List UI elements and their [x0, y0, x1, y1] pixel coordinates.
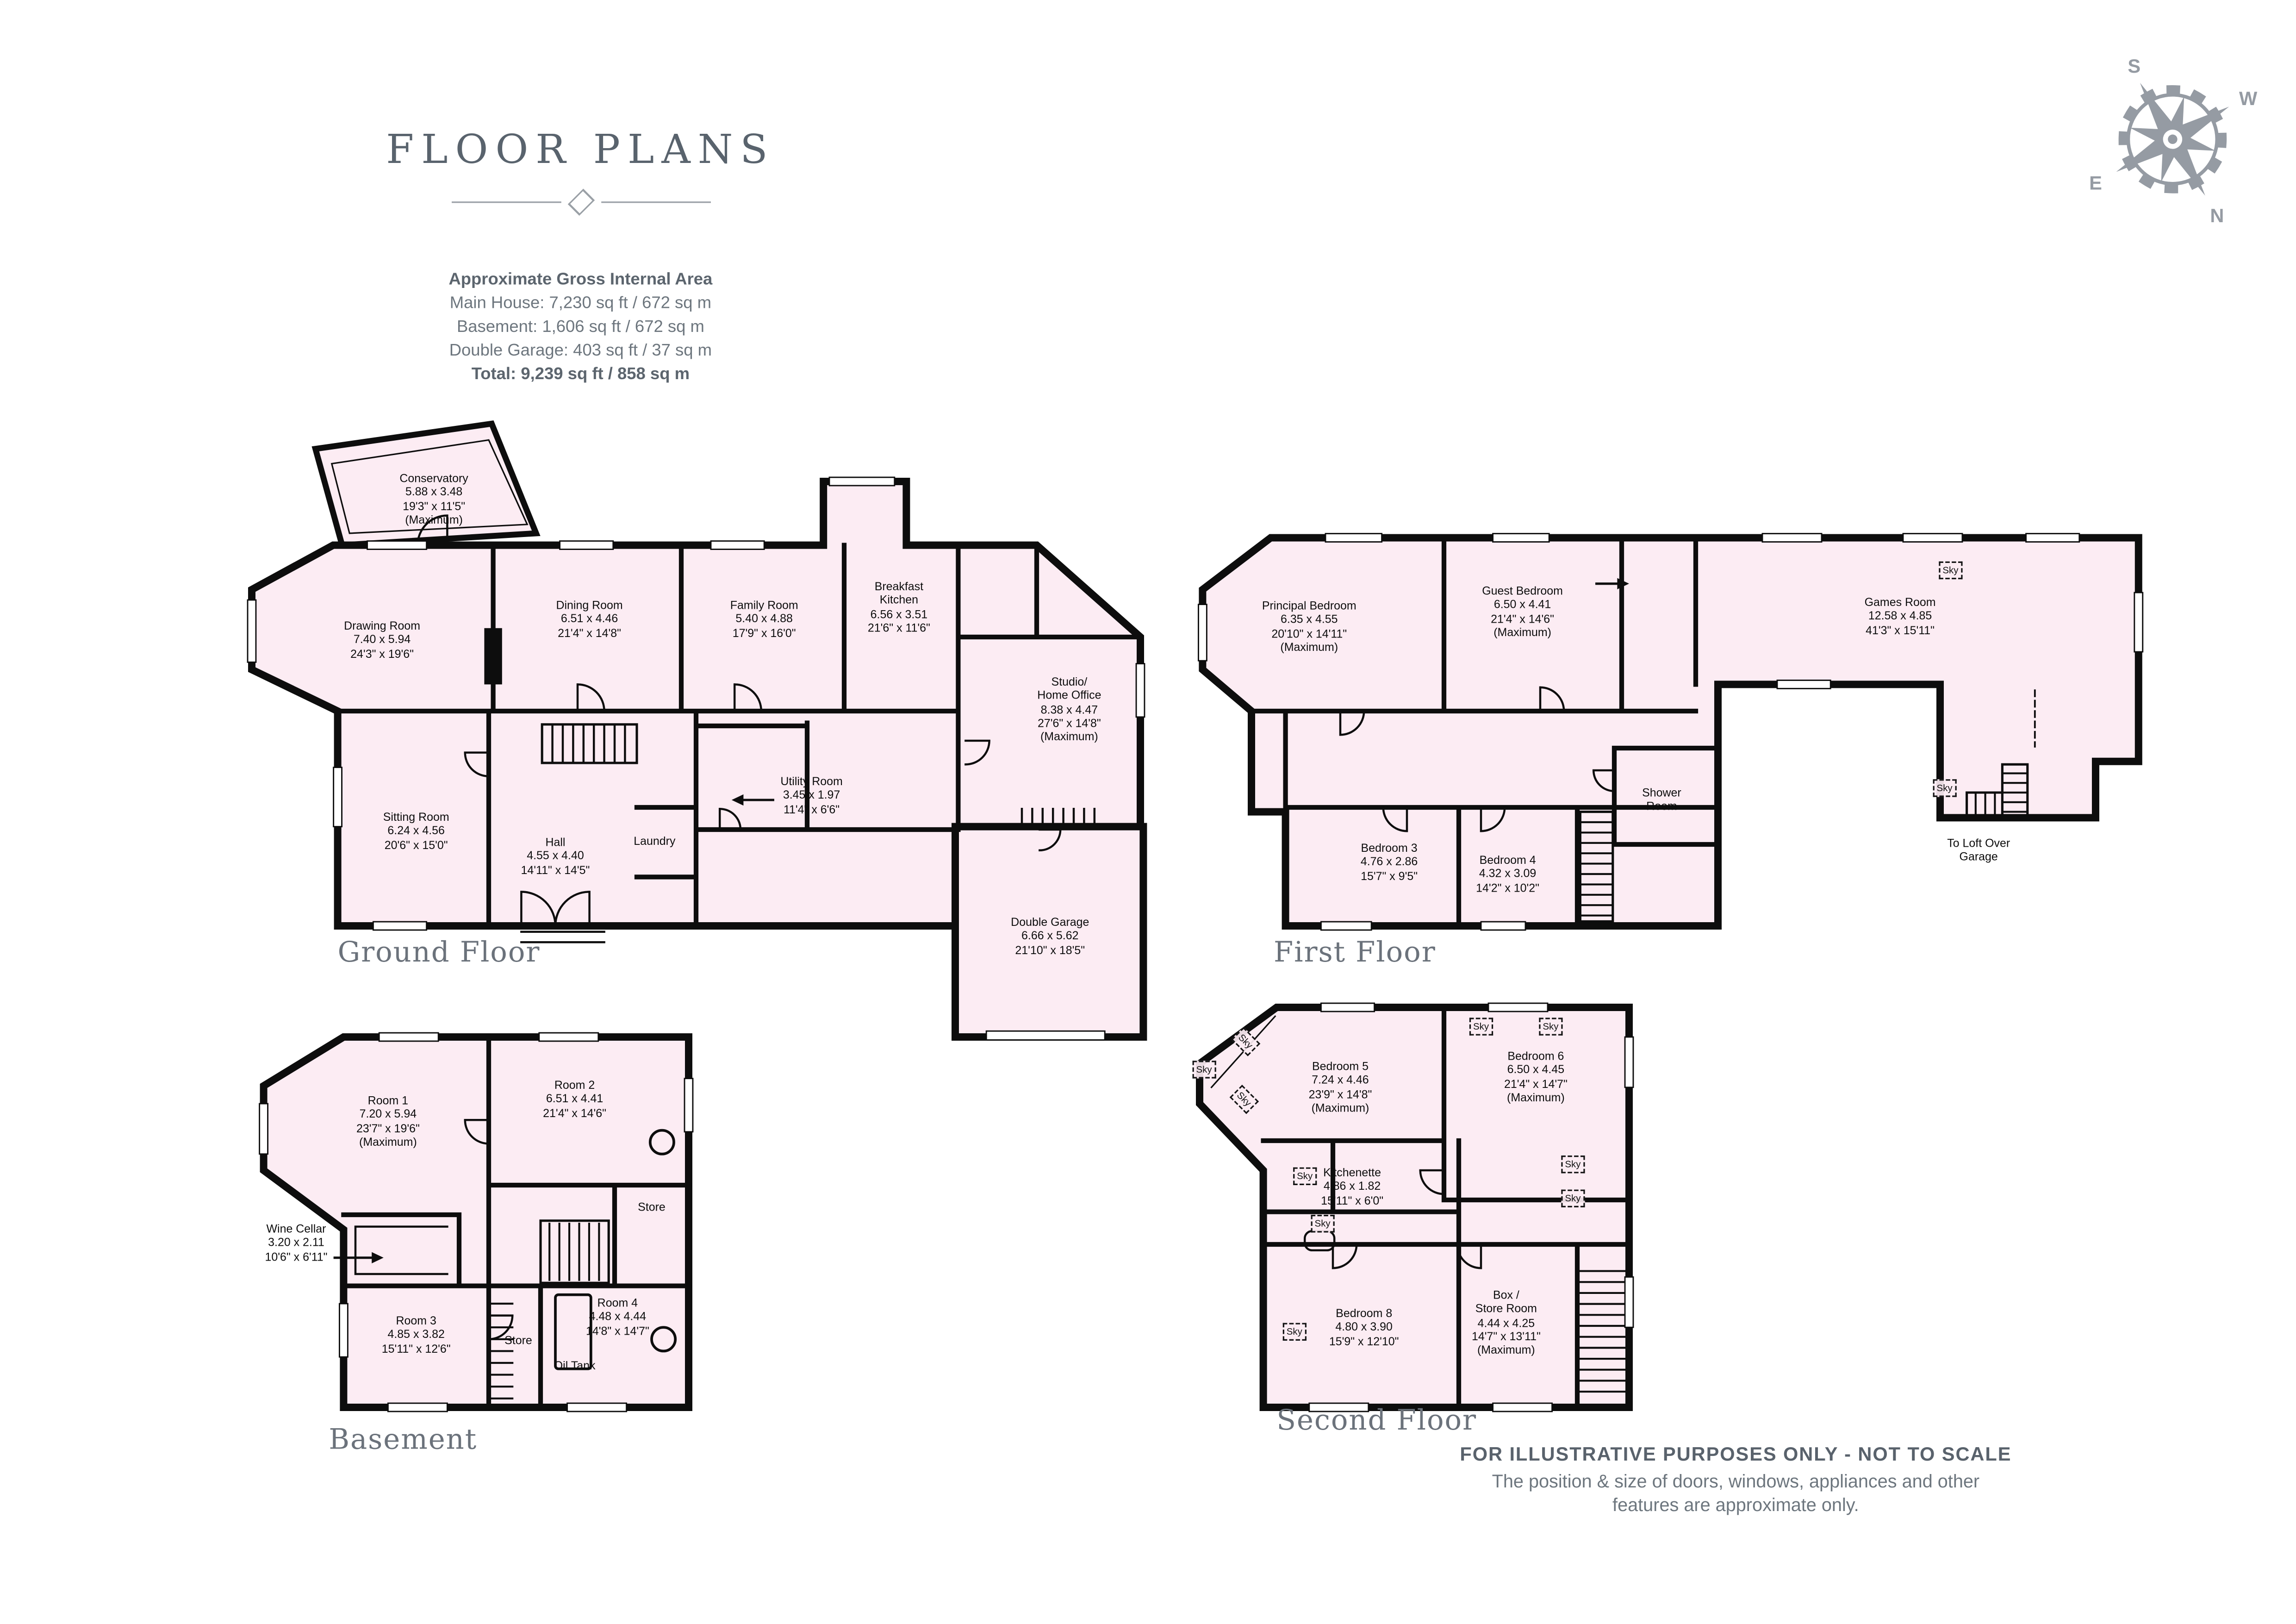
room-label-line: 4.86 x 1.82: [1321, 1180, 1383, 1193]
second-floor-plan: [1200, 1003, 1633, 1412]
room-label-line: Bedroom 8: [1329, 1307, 1399, 1321]
room-label-room-4: Room 44.48 x 4.4414'8" x 14'7": [586, 1296, 649, 1337]
room-label-line: Kitchenette: [1321, 1166, 1383, 1180]
room-label-line: 19'3" x 11'5": [399, 499, 468, 513]
room-label-line: 23'9" x 14'8": [1309, 1087, 1372, 1101]
compass-west-label: W: [2239, 87, 2258, 109]
room-label-line: 6.24 x 4.56: [383, 824, 449, 838]
room-label-line: 14'8" x 14'7": [586, 1324, 649, 1338]
room-label-line: 3.45 x 1.97: [780, 789, 843, 803]
room-label-line: 15'11" x 12'6": [382, 1342, 451, 1355]
room-label-shower-room: ShowerRoom: [1642, 786, 1681, 814]
room-label-line: 3.20 x 2.11: [265, 1236, 328, 1250]
room-label-room-1: Room 17.20 x 5.9423'7" x 19'6"(Maximum): [356, 1094, 420, 1149]
room-label-line: Room 4: [586, 1296, 649, 1310]
room-label-studio-home-office: Studio/Home Office8.38 x 4.4727'6" x 14'…: [1037, 675, 1101, 744]
room-label-bedroom-4: Bedroom 44.32 x 3.0914'2" x 10'2": [1476, 853, 1539, 894]
first-floor-plan: [1198, 534, 2142, 930]
room-label-store-lower: Store: [504, 1334, 532, 1348]
room-label-line: Shower: [1642, 786, 1681, 800]
skylight-label: Sky: [1283, 1323, 1306, 1341]
disclaimer: FOR ILLUSTRATIVE PURPOSES ONLY - NOT TO …: [1425, 1443, 2047, 1517]
room-label-line: Hall: [521, 836, 590, 849]
room-label-utility-room: Utility Room3.45 x 1.9711'4" x 6'6": [780, 775, 843, 816]
room-label-line: Studio/: [1037, 675, 1101, 689]
room-label-line: 20'10" x 14'11": [1262, 627, 1356, 641]
room-label-wine-cellar: Wine Cellar3.20 x 2.1110'6" x 6'11": [265, 1222, 328, 1263]
room-label-line: 11'4" x 6'6": [780, 802, 843, 816]
room-label-line: Guest Bedroom: [1482, 584, 1563, 598]
room-label-hall: Hall4.55 x 4.4014'11" x 14'5": [521, 836, 590, 877]
room-label-line: 15'11" x 6'0": [1321, 1193, 1383, 1207]
disclaimer-line: The position & size of doors, windows, a…: [1425, 1469, 2047, 1493]
room-label-line: (Maximum): [356, 1135, 420, 1149]
room-label-family-room: Family Room5.40 x 4.8817'9" x 16'0": [730, 599, 798, 640]
skylight-text: Sky: [1473, 1021, 1489, 1031]
room-label-line: (Maximum): [1262, 640, 1356, 654]
room-label-line: (Maximum): [1037, 730, 1101, 744]
skylight-text: Sky: [1297, 1171, 1313, 1181]
room-label-line: 17'9" x 16'0": [730, 626, 798, 640]
room-label-sitting-room: Sitting Room6.24 x 4.5620'6" x 15'0": [383, 811, 449, 852]
room-label-line: 21'10" x 18'5": [1011, 943, 1089, 957]
room-label-line: 4.76 x 2.86: [1361, 856, 1418, 869]
skylight-label: Sky: [1933, 779, 1956, 797]
room-label-line: Laundry: [634, 835, 675, 849]
room-label-line: Oil Tank: [554, 1359, 596, 1373]
room-label-line: Drawing Room: [344, 619, 420, 633]
room-label-line: 24'3" x 19'6": [344, 647, 420, 661]
room-label-line: Room 2: [543, 1079, 606, 1093]
skylight-text: Sky: [1235, 1090, 1253, 1108]
skylight-text: Sky: [1565, 1193, 1580, 1204]
room-label-conservatory: Conservatory5.88 x 3.4819'3" x 11'5"(Max…: [399, 472, 468, 527]
skylight-label: Sky: [1311, 1215, 1334, 1232]
skylight-text: Sky: [1196, 1064, 1212, 1074]
room-label-line: (Maximum): [1482, 625, 1563, 639]
room-label-room-3: Room 34.85 x 3.8215'11" x 12'6": [382, 1314, 451, 1355]
room-label-line: Kitchen: [868, 593, 930, 607]
skylight-label: Sky: [1293, 1168, 1316, 1185]
room-label-bedroom-5: Bedroom 57.24 x 4.4623'9" x 14'8"(Maximu…: [1309, 1060, 1372, 1115]
room-label-line: Room 1: [356, 1094, 420, 1108]
room-label-line: 21'4" x 14'6": [543, 1106, 606, 1120]
room-label-store-upper: Store: [638, 1200, 666, 1214]
room-label-line: 6.51 x 4.41: [543, 1093, 606, 1106]
room-label-line: 41'3" x 15'11": [1865, 623, 1936, 637]
room-label-line: Bedroom 3: [1361, 842, 1418, 856]
skylight-label: Sky: [1561, 1156, 1584, 1173]
room-label-line: 4.55 x 4.40: [521, 849, 590, 863]
floorplan-page: FLOOR PLANS Approximate Gross Internal A…: [0, 0, 2296, 1624]
room-label-line: 20'6" x 15'0": [383, 838, 449, 852]
skylight-text: Sky: [1937, 783, 1953, 793]
room-label-line: (Maximum): [1504, 1091, 1568, 1105]
skylight-text: Sky: [1543, 1021, 1558, 1031]
room-label-line: 14'11" x 14'5": [521, 863, 590, 877]
room-label-line: Utility Room: [780, 775, 843, 789]
room-label-line: Conservatory: [399, 472, 468, 486]
room-label-line: (Maximum): [399, 513, 468, 527]
room-label-double-garage: Double Garage6.66 x 5.6221'10" x 18'5": [1011, 916, 1089, 957]
skylight-text: Sky: [1236, 1032, 1255, 1051]
room-label-line: 7.20 x 5.94: [356, 1108, 420, 1122]
room-label-breakfast-kitchen: BreakfastKitchen6.56 x 3.5121'6" x 11'6": [868, 580, 930, 635]
room-label-line: Bedroom 6: [1504, 1049, 1568, 1063]
room-label-line: 15'9" x 12'10": [1329, 1334, 1399, 1348]
room-label-line: 21'4" x 14'8": [556, 626, 622, 640]
room-label-line: 7.24 x 4.46: [1309, 1074, 1372, 1087]
skylight-text: Sky: [1565, 1159, 1580, 1169]
room-label-drawing-room: Drawing Room7.40 x 5.9424'3" x 19'6": [344, 619, 420, 661]
room-label-line: Store Room: [1472, 1302, 1541, 1316]
compass-east-label: E: [2089, 172, 2102, 194]
room-label-line: 6.66 x 5.62: [1011, 930, 1089, 943]
room-label-loft-access: To Loft OverGarage: [1947, 837, 2010, 864]
skylight-label: Sky: [1193, 1061, 1216, 1078]
room-label-line: 6.35 x 4.55: [1262, 613, 1356, 627]
room-label-room-2: Room 26.51 x 4.4121'4" x 14'6": [543, 1079, 606, 1120]
room-label-line: Store: [638, 1200, 666, 1214]
room-label-line: Double Garage: [1011, 916, 1089, 930]
floor-title-basement: Basement: [329, 1424, 477, 1456]
room-label-line: 14'7" x 13'11": [1472, 1330, 1541, 1343]
room-label-line: Bedroom 5: [1309, 1060, 1372, 1074]
floor-title-second: Second Floor: [1276, 1405, 1477, 1437]
skylight-label: Sky: [1539, 1018, 1562, 1035]
room-label-principal-bedroom: Principal Bedroom6.35 x 4.5520'10" x 14'…: [1262, 599, 1356, 654]
room-label-line: 4.85 x 3.82: [382, 1328, 451, 1342]
room-label-line: 10'6" x 6'11": [265, 1250, 328, 1264]
room-label-line: 4.48 x 4.44: [586, 1310, 649, 1324]
room-label-line: Principal Bedroom: [1262, 599, 1356, 613]
room-label-line: 14'2" x 10'2": [1476, 881, 1539, 895]
room-label-bedroom-8: Bedroom 84.80 x 3.9015'9" x 12'10": [1329, 1307, 1399, 1348]
skylight-text: Sky: [1315, 1218, 1331, 1229]
room-label-line: (Maximum): [1309, 1101, 1372, 1115]
floor-plans-drawing: S W N E: [0, 0, 2296, 1624]
room-label-line: 21'6" x 11'6": [868, 621, 930, 635]
room-label-box-store-room: Box /Store Room4.44 x 4.2514'7" x 13'11"…: [1472, 1288, 1541, 1357]
room-label-line: Store: [504, 1334, 532, 1348]
compass-north-label: N: [2210, 205, 2224, 226]
room-label-line: Room: [1642, 800, 1681, 814]
skylight-label: Sky: [1561, 1190, 1584, 1207]
room-label-line: 6.51 x 4.46: [556, 612, 622, 626]
skylight-label: Sky: [1939, 562, 1962, 579]
room-label-games-room: Games Room12.58 x 4.8541'3" x 15'11": [1865, 596, 1936, 637]
room-label-line: Dining Room: [556, 599, 622, 612]
skylight-text: Sky: [1287, 1327, 1302, 1337]
room-label-line: Breakfast: [868, 580, 930, 594]
room-label-kitchenette: Kitchenette4.86 x 1.8215'11" x 6'0": [1321, 1166, 1383, 1207]
floor-title-ground: Ground Floor: [338, 936, 541, 968]
room-label-line: 5.40 x 4.88: [730, 612, 798, 626]
room-label-line: 4.80 x 3.90: [1329, 1320, 1399, 1334]
room-label-line: Wine Cellar: [265, 1222, 328, 1236]
room-label-oil-tank: Oil Tank: [554, 1359, 596, 1373]
room-label-laundry: Laundry: [634, 835, 675, 849]
room-label-line: 21'4" x 14'7": [1504, 1077, 1568, 1091]
room-label-line: 23'7" x 19'6": [356, 1121, 420, 1135]
room-label-line: Bedroom 4: [1476, 853, 1539, 867]
room-label-line: 7.40 x 5.94: [344, 633, 420, 647]
room-label-line: 6.56 x 3.51: [868, 607, 930, 621]
skylight-label: Sky: [1469, 1018, 1493, 1035]
floor-title-first: First Floor: [1274, 936, 1436, 968]
room-label-bedroom-3: Bedroom 34.76 x 2.8615'7" x 9'5": [1361, 842, 1418, 883]
room-label-line: 8.38 x 4.47: [1037, 703, 1101, 717]
room-label-line: Home Office: [1037, 689, 1101, 703]
room-label-line: To Loft Over: [1947, 837, 2010, 850]
disclaimer-line: features are approximate only.: [1425, 1493, 2047, 1517]
room-label-bedroom-6: Bedroom 66.50 x 4.4521'4" x 14'7"(Maximu…: [1504, 1049, 1568, 1105]
room-label-line: Box /: [1472, 1288, 1541, 1302]
room-label-line: 5.88 x 3.48: [399, 486, 468, 500]
room-label-line: 6.50 x 4.41: [1482, 598, 1563, 612]
skylight-text: Sky: [1942, 565, 1958, 575]
room-label-line: Games Room: [1865, 596, 1936, 610]
disclaimer-heading: FOR ILLUSTRATIVE PURPOSES ONLY - NOT TO …: [1425, 1443, 2047, 1465]
room-label-line: 4.32 x 3.09: [1476, 867, 1539, 881]
room-label-line: (Maximum): [1472, 1343, 1541, 1357]
room-label-line: Garage: [1947, 850, 2010, 864]
room-label-line: 15'7" x 9'5": [1361, 869, 1418, 883]
room-label-line: 4.44 x 4.25: [1472, 1316, 1541, 1330]
compass-rose-icon: S W N E: [2089, 55, 2258, 226]
room-label-line: 21'4" x 14'6": [1482, 612, 1563, 626]
room-label-dining-room: Dining Room6.51 x 4.4621'4" x 14'8": [556, 599, 622, 640]
room-label-line: 12.58 x 4.85: [1865, 609, 1936, 623]
room-label-line: Sitting Room: [383, 811, 449, 824]
room-label-line: 27'6" x 14'8": [1037, 717, 1101, 731]
room-label-line: 6.50 x 4.45: [1504, 1063, 1568, 1077]
compass-south-label: S: [2128, 55, 2140, 77]
room-label-line: Room 3: [382, 1314, 451, 1328]
room-label-guest-bedroom: Guest Bedroom6.50 x 4.4121'4" x 14'6"(Ma…: [1482, 584, 1563, 639]
room-label-line: Family Room: [730, 599, 798, 612]
